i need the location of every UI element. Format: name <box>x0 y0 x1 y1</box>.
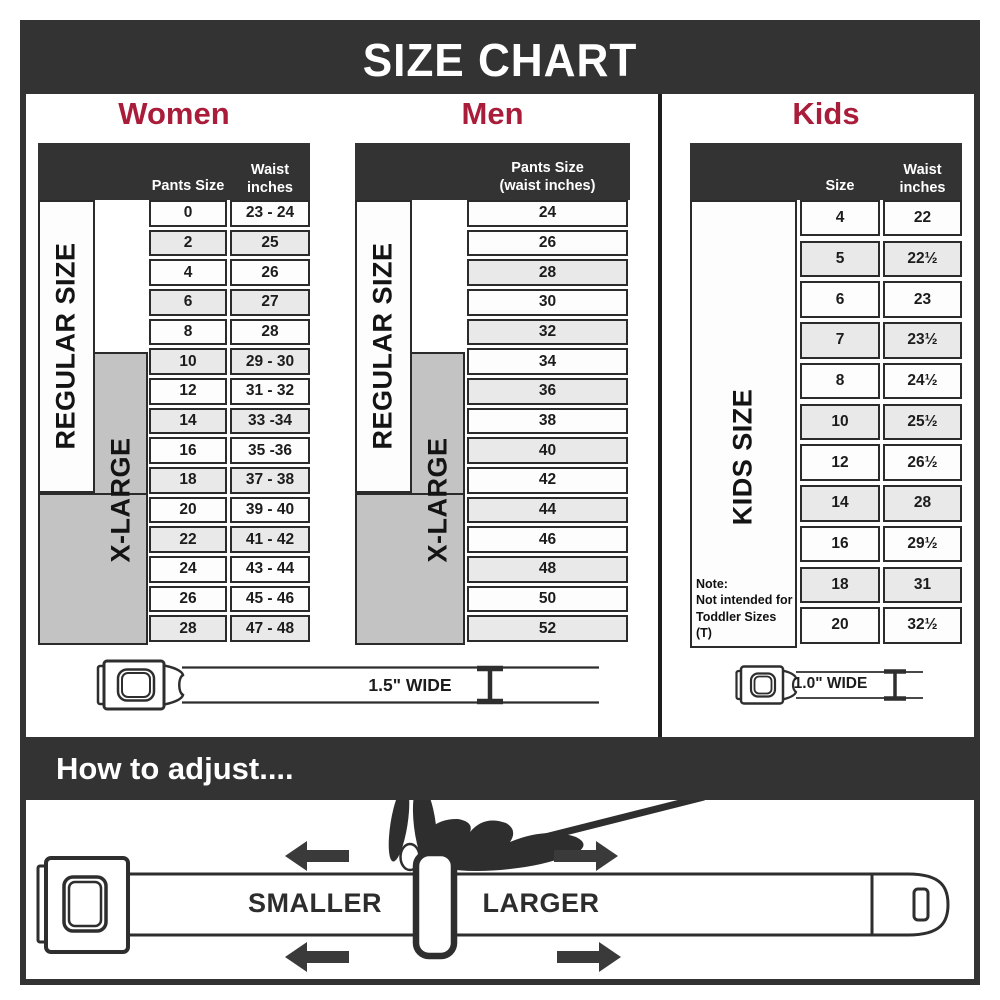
women-size-cell: 24 <box>149 556 227 583</box>
kids-size-cell: 10 <box>800 404 880 440</box>
women-waist-cell: 26 <box>230 259 310 286</box>
adult-belt-icon <box>95 658 600 712</box>
kids-size-cell: 20 <box>800 607 880 643</box>
kids-table-rows: KIDS SIZE Note: Not intended for Toddler… <box>690 200 962 648</box>
chart-frame: SIZE CHART Women Men Kids Pants Size Wai… <box>20 20 980 985</box>
men-table-rows: REGULAR SIZE X-LARGE 2426283032343638404… <box>355 200 630 645</box>
women-waist-cell: 41 - 42 <box>230 526 310 553</box>
women-waist-cell: 25 <box>230 230 310 257</box>
kids-size-table: Size Waist inches KIDS SIZE Note: Not in… <box>690 143 962 648</box>
kids-size-cell: 7 <box>800 322 880 358</box>
men-xlarge-label: X-LARGE <box>423 438 454 563</box>
women-waist-cell: 43 - 44 <box>230 556 310 583</box>
men-size-table: Pants Size (waist inches) REGULAR SIZE X… <box>355 143 630 645</box>
men-size-cell: 48 <box>467 556 628 583</box>
kids-waist-cell: 23½ <box>883 322 962 358</box>
women-waist-cell: 47 - 48 <box>230 615 310 642</box>
width-measure-icon <box>884 672 906 699</box>
women-xlarge-label: X-LARGE <box>106 438 137 563</box>
kids-size-cell: 8 <box>800 363 880 399</box>
kids-waist-cell: 32½ <box>883 607 962 643</box>
kids-size-cell: 6 <box>800 281 880 317</box>
women-size-cell: 22 <box>149 526 227 553</box>
width-measure-icon <box>477 668 503 702</box>
women-section-title: Women <box>38 96 310 132</box>
men-section-title: Men <box>355 96 630 132</box>
kids-size-cell: 5 <box>800 241 880 277</box>
kids-waist-cell: 26½ <box>883 444 962 480</box>
kids-section-title: Kids <box>690 96 962 132</box>
women-col1-header: Pants Size <box>149 178 227 195</box>
women-size-cell: 28 <box>149 615 227 642</box>
women-waist-cell: 35 -36 <box>230 437 310 464</box>
section-divider <box>658 94 662 737</box>
women-waist-cell: 45 - 46 <box>230 586 310 613</box>
kids-size-cell: 14 <box>800 485 880 521</box>
right-arrow-icon <box>557 942 621 972</box>
kids-waist-cell: 22½ <box>883 241 962 277</box>
women-size-table: Pants Size Waist inches REGULAR SIZE X-L… <box>38 143 310 645</box>
kids-col1-header: Size <box>800 178 880 195</box>
kids-side-panel: KIDS SIZE Note: Not intended for Toddler… <box>690 200 797 648</box>
men-size-cell: 52 <box>467 615 628 642</box>
men-regular-label: REGULAR SIZE <box>368 242 399 449</box>
men-size-cell: 38 <box>467 408 628 435</box>
men-table-header: Pants Size (waist inches) <box>355 143 630 200</box>
belt-tip <box>872 874 948 935</box>
women-table-header: Pants Size Waist inches <box>38 143 310 200</box>
women-size-cell: 16 <box>149 437 227 464</box>
size-chart-page: SIZE CHART Women Men Kids Pants Size Wai… <box>0 0 1000 1000</box>
women-waist-cell: 31 - 32 <box>230 378 310 405</box>
kids-table-header: Size Waist inches <box>690 143 962 200</box>
kids-waist-cell: 25½ <box>883 404 962 440</box>
men-size-cell: 50 <box>467 586 628 613</box>
left-arrow-icon <box>285 942 349 972</box>
page-title: SIZE CHART <box>363 33 638 87</box>
women-size-cell: 14 <box>149 408 227 435</box>
belt-adjuster-slider <box>416 853 454 956</box>
how-to-adjust-band: How to adjust.... <box>26 737 974 800</box>
women-waist-cell: 28 <box>230 319 310 346</box>
main-area: Women Men Kids Pants Size Waist inches R… <box>26 94 974 737</box>
men-size-cell: 24 <box>467 200 628 227</box>
adjust-illustration-area: SMALLER LARGER <box>26 800 974 979</box>
kids-waist-cell: 29½ <box>883 526 962 562</box>
men-size-cell: 26 <box>467 230 628 257</box>
kids-note: Note: Not intended for Toddler Sizes (T) <box>696 576 795 641</box>
women-regular-label: REGULAR SIZE <box>51 242 82 449</box>
kids-size-cell: 16 <box>800 526 880 562</box>
women-size-cell: 0 <box>149 200 227 227</box>
women-size-cell: 2 <box>149 230 227 257</box>
men-size-cell: 34 <box>467 348 628 375</box>
left-arrow-icon <box>285 841 349 871</box>
women-waist-cell: 39 - 40 <box>230 497 310 524</box>
women-size-cell: 12 <box>149 378 227 405</box>
larger-label: LARGER <box>466 888 616 919</box>
belt-tip-slot <box>914 889 928 920</box>
kids-waist-cell: 24½ <box>883 363 962 399</box>
women-waist-cell: 37 - 38 <box>230 467 310 494</box>
men-col-header: Pants Size (waist inches) <box>467 160 628 195</box>
men-size-cell: 46 <box>467 526 628 553</box>
women-table-rows: REGULAR SIZE X-LARGE 023 - 2422542662782… <box>38 200 310 645</box>
men-size-cell: 28 <box>467 259 628 286</box>
men-size-cell: 42 <box>467 467 628 494</box>
women-size-cell: 26 <box>149 586 227 613</box>
kids-col2-header: Waist inches <box>883 162 962 197</box>
kids-size-label: KIDS SIZE <box>728 389 759 526</box>
kids-waist-cell: 31 <box>883 567 962 603</box>
kids-belt-width-label: 1.0" WIDE <box>783 675 878 693</box>
men-size-cell: 36 <box>467 378 628 405</box>
women-col2-header: Waist inches <box>230 162 310 197</box>
adult-belt-illustration: 1.5" WIDE <box>95 658 600 712</box>
women-waist-cell: 29 - 30 <box>230 348 310 375</box>
kids-belt-illustration: 1.0" WIDE <box>735 664 925 706</box>
men-size-cell: 40 <box>467 437 628 464</box>
kids-waist-cell: 22 <box>883 200 962 236</box>
men-size-cell: 32 <box>467 319 628 346</box>
men-size-cell: 44 <box>467 497 628 524</box>
women-waist-cell: 27 <box>230 289 310 316</box>
women-waist-cell: 33 -34 <box>230 408 310 435</box>
title-band: SIZE CHART <box>26 26 974 94</box>
women-size-cell: 4 <box>149 259 227 286</box>
women-size-cell: 18 <box>149 467 227 494</box>
women-waist-cell: 23 - 24 <box>230 200 310 227</box>
men-size-cell: 30 <box>467 289 628 316</box>
kids-size-cell: 4 <box>800 200 880 236</box>
kids-waist-cell: 23 <box>883 281 962 317</box>
women-size-cell: 8 <box>149 319 227 346</box>
smaller-label: SMALLER <box>240 888 390 919</box>
women-size-cell: 10 <box>149 348 227 375</box>
kids-size-cell: 18 <box>800 567 880 603</box>
kids-size-cell: 12 <box>800 444 880 480</box>
adult-belt-width-label: 1.5" WIDE <box>355 675 465 696</box>
how-to-adjust-title: How to adjust.... <box>56 751 294 787</box>
women-size-cell: 6 <box>149 289 227 316</box>
kids-waist-cell: 28 <box>883 485 962 521</box>
women-size-cell: 20 <box>149 497 227 524</box>
